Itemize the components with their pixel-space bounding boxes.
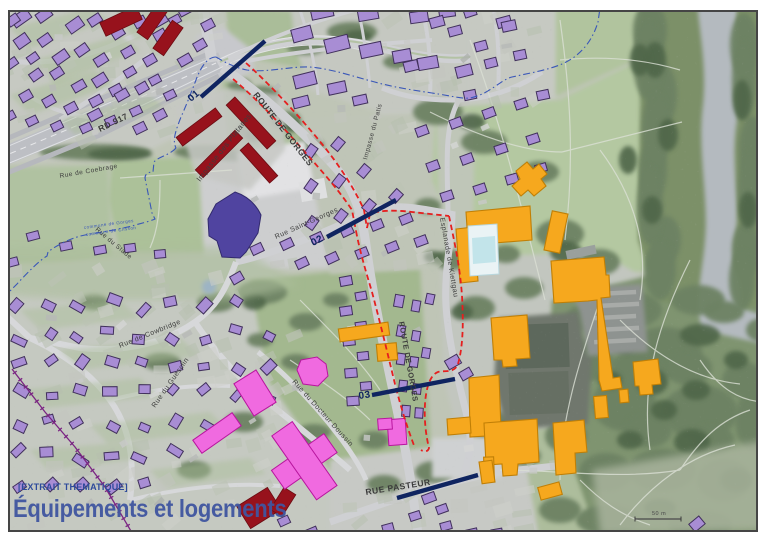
svg-text:03: 03 bbox=[358, 389, 372, 402]
svg-text:50 m: 50 m bbox=[652, 511, 666, 517]
svg-text:[EXTRAIT THEMATIQUE]: [EXTRAIT THEMATIQUE] bbox=[18, 482, 128, 492]
svg-text:Équipements et logements: Équipements et logements bbox=[13, 494, 287, 523]
